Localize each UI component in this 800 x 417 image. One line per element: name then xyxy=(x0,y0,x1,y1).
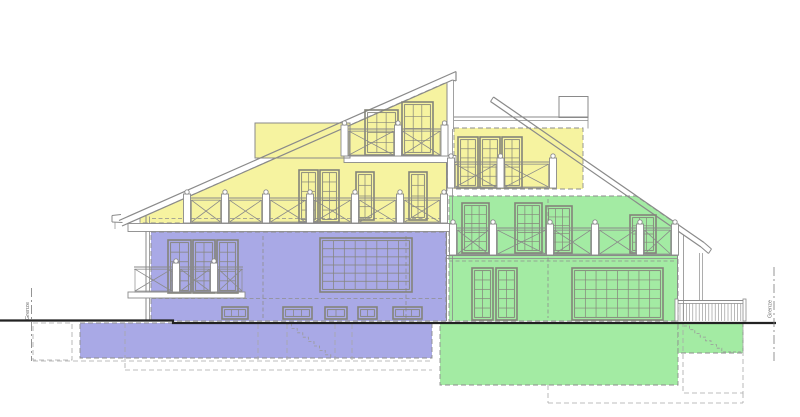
elevation-drawing: GrenzeGrenze xyxy=(0,0,800,417)
railing-post xyxy=(441,125,448,156)
railing-post-finial xyxy=(548,220,552,224)
railing-post xyxy=(173,263,180,292)
railing-post-finial xyxy=(185,190,189,194)
railing-post xyxy=(211,263,218,292)
structure-line xyxy=(112,222,123,223)
railing-post-finial xyxy=(673,220,677,224)
structure-line xyxy=(709,249,712,254)
structure-line xyxy=(112,215,121,216)
slat-railing-post xyxy=(675,299,678,321)
railing-post-finial xyxy=(396,121,400,125)
railing-post xyxy=(397,194,404,223)
structure-line xyxy=(701,247,709,254)
railing-post-finial xyxy=(498,154,502,158)
railing-post-finial xyxy=(451,220,455,224)
railing-post-finial xyxy=(308,190,312,194)
railing-post-finial xyxy=(342,121,346,125)
railing-post xyxy=(352,194,359,223)
attic-unit-overlay xyxy=(255,123,350,158)
boundary-label-left: Grenze xyxy=(25,302,31,320)
railing-post xyxy=(497,158,504,188)
railing-post xyxy=(263,194,270,223)
railing-post-finial xyxy=(212,259,216,263)
railing-post-finial xyxy=(264,190,268,194)
railing-post-finial xyxy=(442,121,446,125)
right-unit-overlay xyxy=(440,323,678,385)
railing-post xyxy=(222,194,229,223)
right-unit-overlay xyxy=(678,323,743,353)
railing-post xyxy=(672,224,679,255)
basement-dashed-box xyxy=(33,323,72,360)
railing-post-finial xyxy=(551,154,555,158)
railing-post xyxy=(450,224,457,255)
railing-post-finial xyxy=(593,220,597,224)
railing-post-finial xyxy=(353,190,357,194)
boundary-label-right: Grenze xyxy=(768,300,774,318)
left-unit-overlay xyxy=(80,323,432,358)
railing-post-finial xyxy=(174,259,178,263)
railing-post xyxy=(395,125,402,156)
railing-post xyxy=(341,125,348,156)
railing-post xyxy=(490,224,497,255)
railing-post-finial xyxy=(491,220,495,224)
structure-line xyxy=(704,243,712,250)
railing-post-finial xyxy=(638,220,642,224)
wall-box xyxy=(559,97,588,118)
railing-post xyxy=(592,224,599,255)
railing-post xyxy=(637,224,644,255)
structure-line xyxy=(491,97,494,102)
railing-post xyxy=(307,194,314,223)
railing-post xyxy=(550,158,557,188)
railing-post xyxy=(184,194,191,223)
railing-post xyxy=(448,158,455,188)
railing-post-finial xyxy=(449,154,453,158)
railing-post xyxy=(547,224,554,255)
railing-post-finial xyxy=(223,190,227,194)
elevation-page: GrenzeGrenze xyxy=(0,0,800,417)
railing-post-finial xyxy=(398,190,402,194)
railing-post-finial xyxy=(442,190,446,194)
slat-railing-post xyxy=(743,299,746,321)
floor-slab xyxy=(128,224,453,232)
railing-post xyxy=(441,194,448,223)
